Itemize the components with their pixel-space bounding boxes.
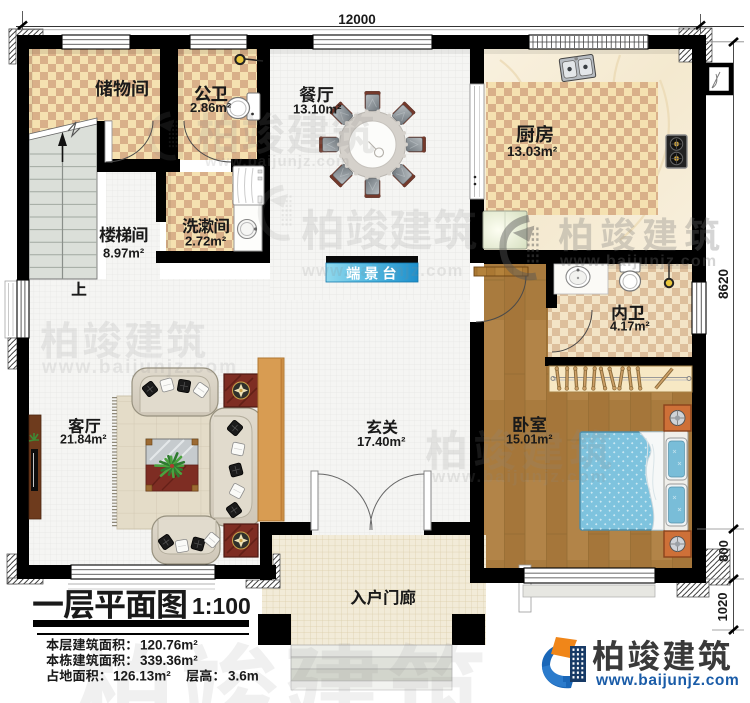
svg-text:8.97m²: 8.97m² bbox=[103, 246, 145, 261]
svg-text:4.17m²: 4.17m² bbox=[610, 320, 650, 334]
svg-text:1020: 1020 bbox=[715, 593, 730, 622]
svg-text:www.baijunjz.com: www.baijunjz.com bbox=[301, 262, 464, 280]
svg-text:8620: 8620 bbox=[716, 269, 731, 299]
svg-text:www.baijunjz.com: www.baijunjz.com bbox=[204, 153, 350, 170]
svg-text:3.6m: 3.6m bbox=[228, 669, 259, 684]
svg-text:www.baijunjz.com: www.baijunjz.com bbox=[41, 357, 238, 378]
svg-text:13.03m²: 13.03m² bbox=[507, 144, 558, 159]
svg-text:126.13m²: 126.13m² bbox=[113, 669, 171, 684]
svg-text:21.84m²: 21.84m² bbox=[60, 433, 107, 447]
svg-text:800: 800 bbox=[716, 540, 731, 562]
svg-text:www.baijunjz.com: www.baijunjz.com bbox=[595, 672, 739, 689]
svg-text:www.baijunjz.com: www.baijunjz.com bbox=[559, 253, 717, 270]
svg-text:339.36m²: 339.36m² bbox=[140, 653, 198, 668]
svg-text:www.baijunjz.com: www.baijunjz.com bbox=[431, 467, 608, 486]
svg-text:1:100: 1:100 bbox=[192, 593, 251, 619]
svg-text:15.01m²: 15.01m² bbox=[506, 433, 553, 447]
svg-text:120.76m²: 120.76m² bbox=[140, 638, 198, 653]
svg-text:13.10m²: 13.10m² bbox=[293, 102, 342, 117]
svg-text:2.72m²: 2.72m² bbox=[185, 234, 227, 249]
svg-text:17.40m²: 17.40m² bbox=[357, 434, 406, 449]
svg-text:12000: 12000 bbox=[338, 12, 376, 27]
svg-text:2.86m²: 2.86m² bbox=[190, 100, 232, 115]
